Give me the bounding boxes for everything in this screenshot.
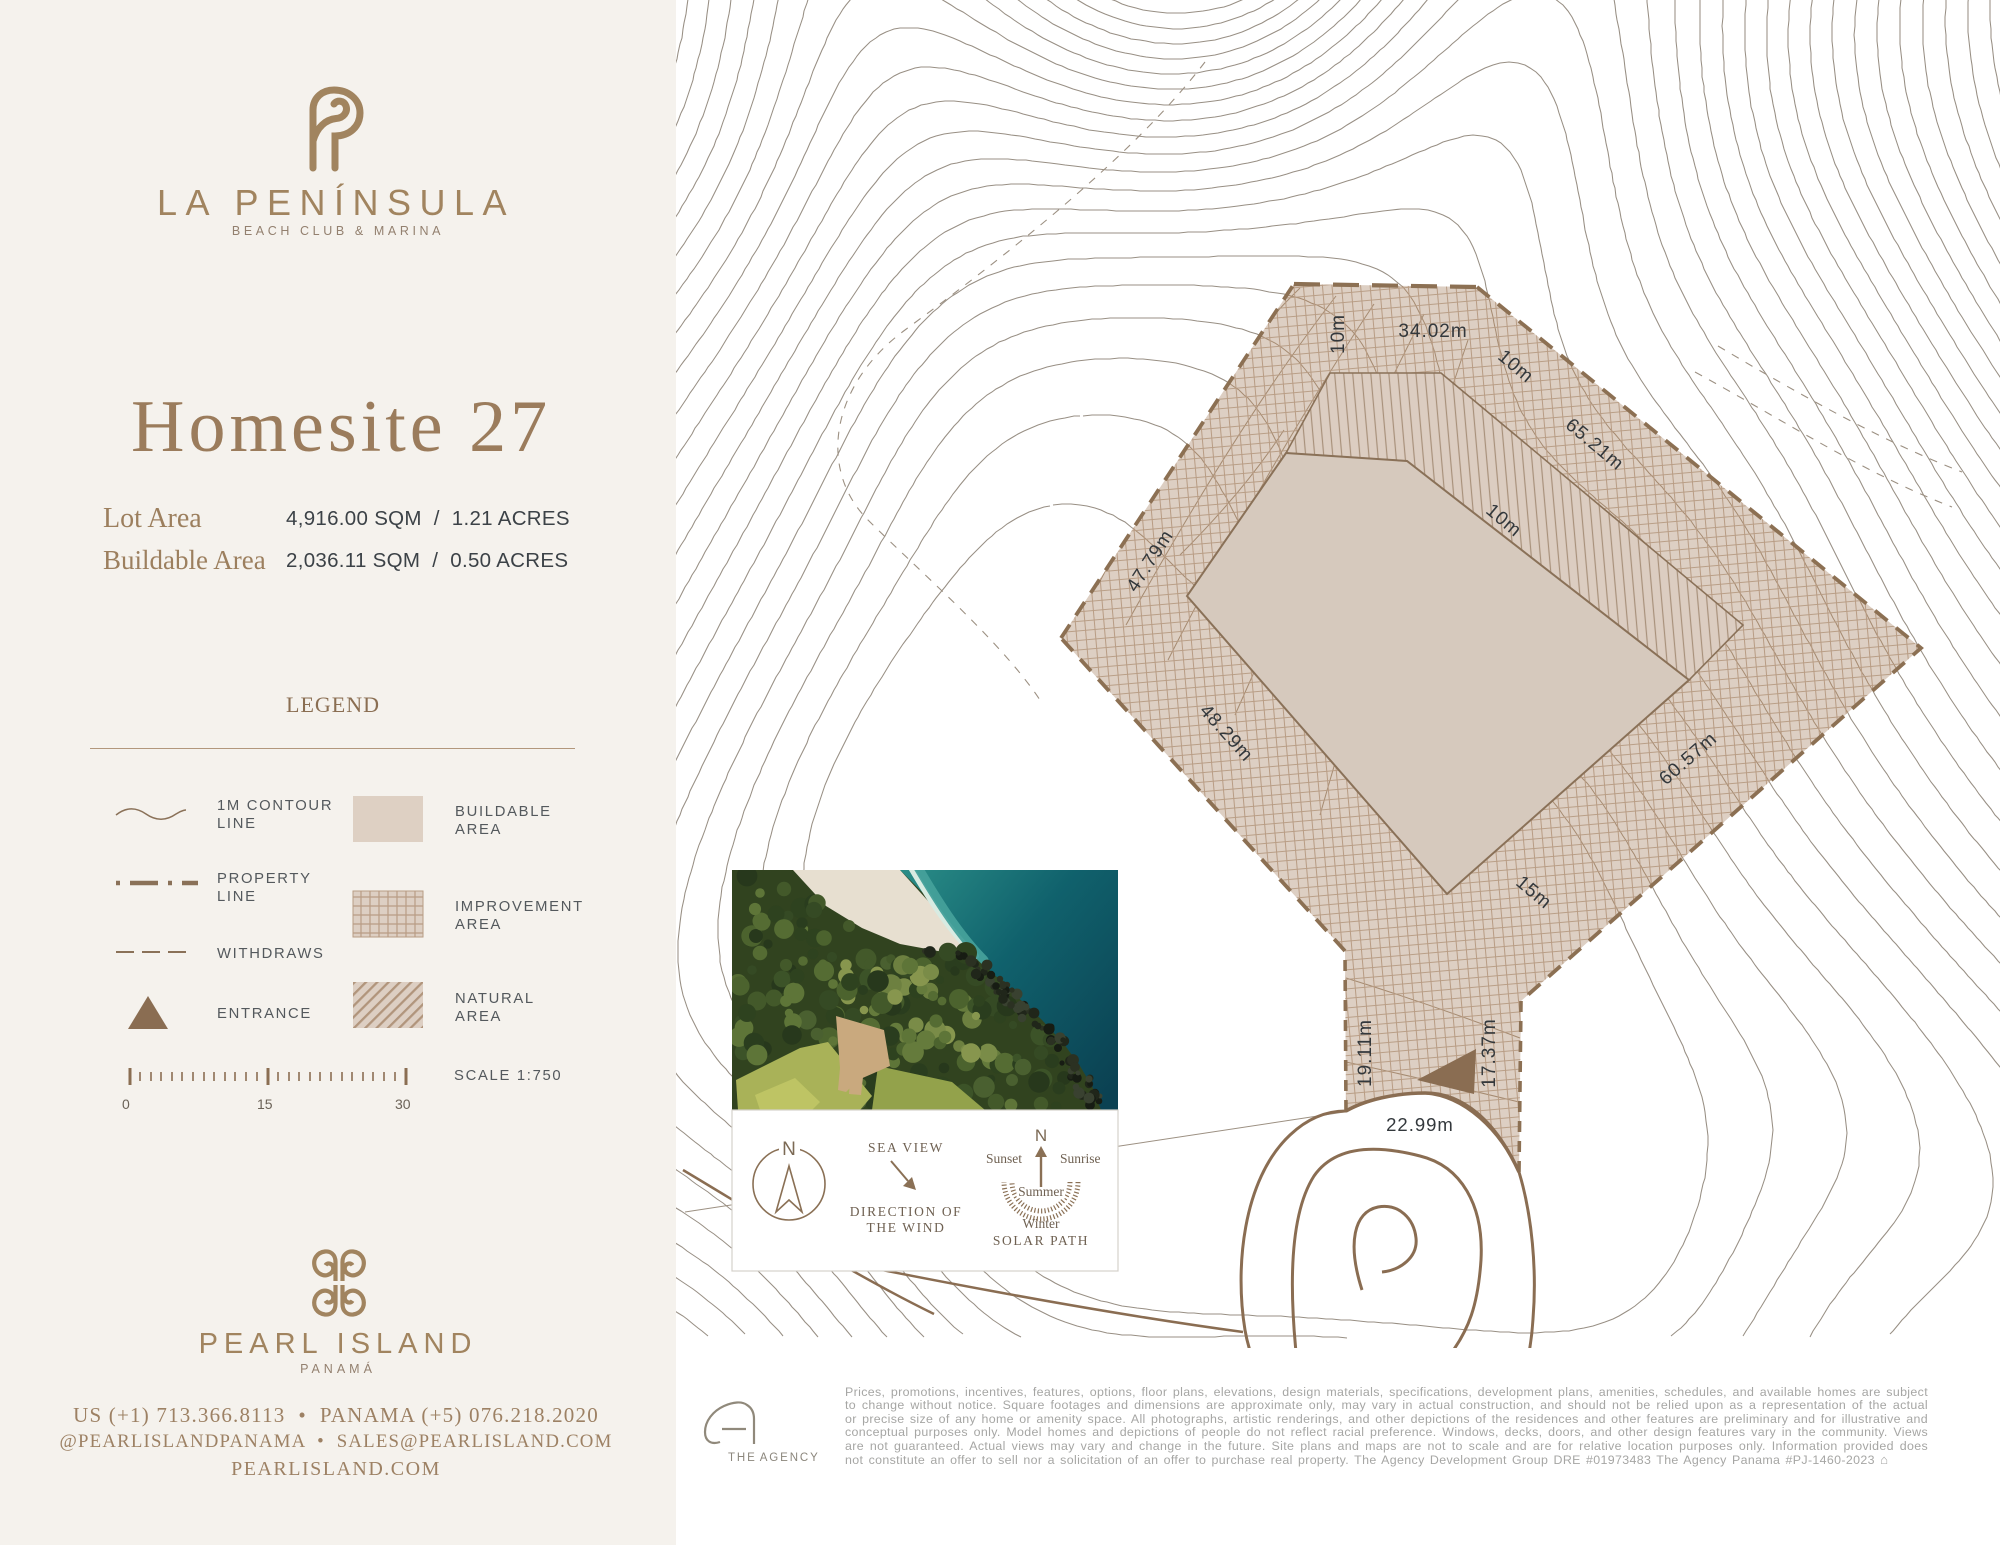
svg-text:Winter: Winter xyxy=(1023,1216,1060,1231)
svg-text:SEA VIEW: SEA VIEW xyxy=(868,1140,944,1155)
svg-text:Sunset: Sunset xyxy=(986,1151,1022,1166)
svg-text:THE WIND: THE WIND xyxy=(867,1220,946,1235)
svg-text:22.99m: 22.99m xyxy=(1386,1114,1454,1135)
svg-text:SOLAR PATH: SOLAR PATH xyxy=(993,1233,1089,1248)
svg-text:N: N xyxy=(782,1139,796,1160)
svg-text:10m: 10m xyxy=(1328,314,1349,354)
svg-text:THEAGENCY: THEAGENCY xyxy=(728,1452,820,1464)
svg-text:Sunrise: Sunrise xyxy=(1060,1151,1101,1166)
svg-text:N: N xyxy=(1035,1126,1047,1145)
svg-text:19.11m: 19.11m xyxy=(1355,1019,1376,1087)
svg-text:34.02m: 34.02m xyxy=(1398,321,1467,342)
svg-text:17.37m: 17.37m xyxy=(1479,1018,1500,1087)
svg-text:DIRECTION OF: DIRECTION OF xyxy=(850,1204,963,1219)
svg-text:Summer: Summer xyxy=(1018,1184,1064,1199)
